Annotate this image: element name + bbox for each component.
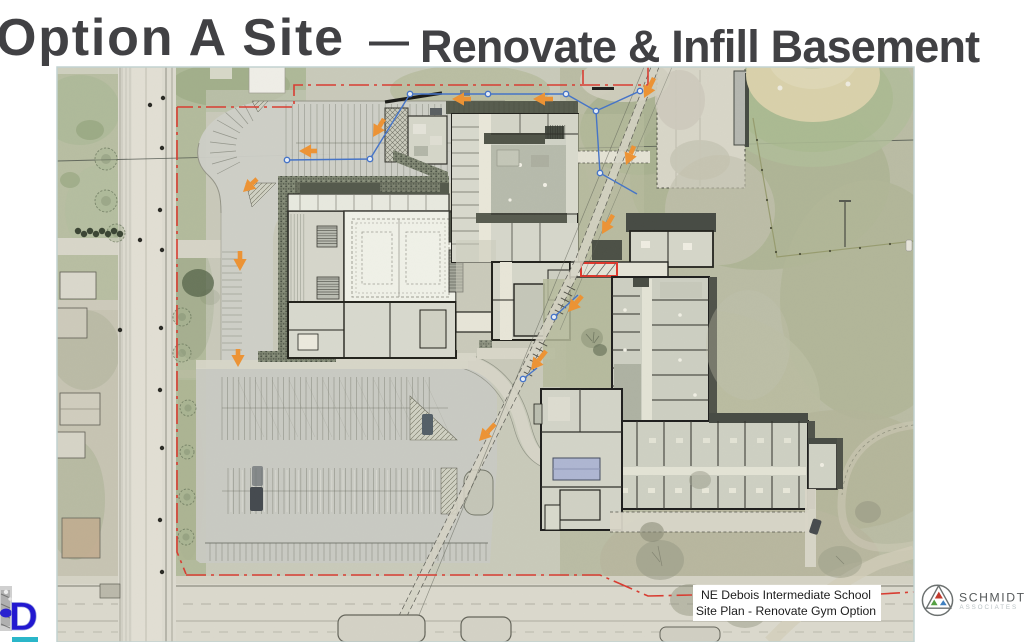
- svg-text:Site Plan - Renovate Gym Optio: Site Plan - Renovate Gym Option: [696, 604, 876, 618]
- svg-text:NE Debois Intermediate School: NE Debois Intermediate School: [701, 588, 871, 602]
- svg-text:ASSOCIATES: ASSOCIATES: [960, 604, 1019, 611]
- svg-text:D: D: [9, 595, 38, 639]
- svg-text:SCHMIDT: SCHMIDT: [959, 591, 1024, 605]
